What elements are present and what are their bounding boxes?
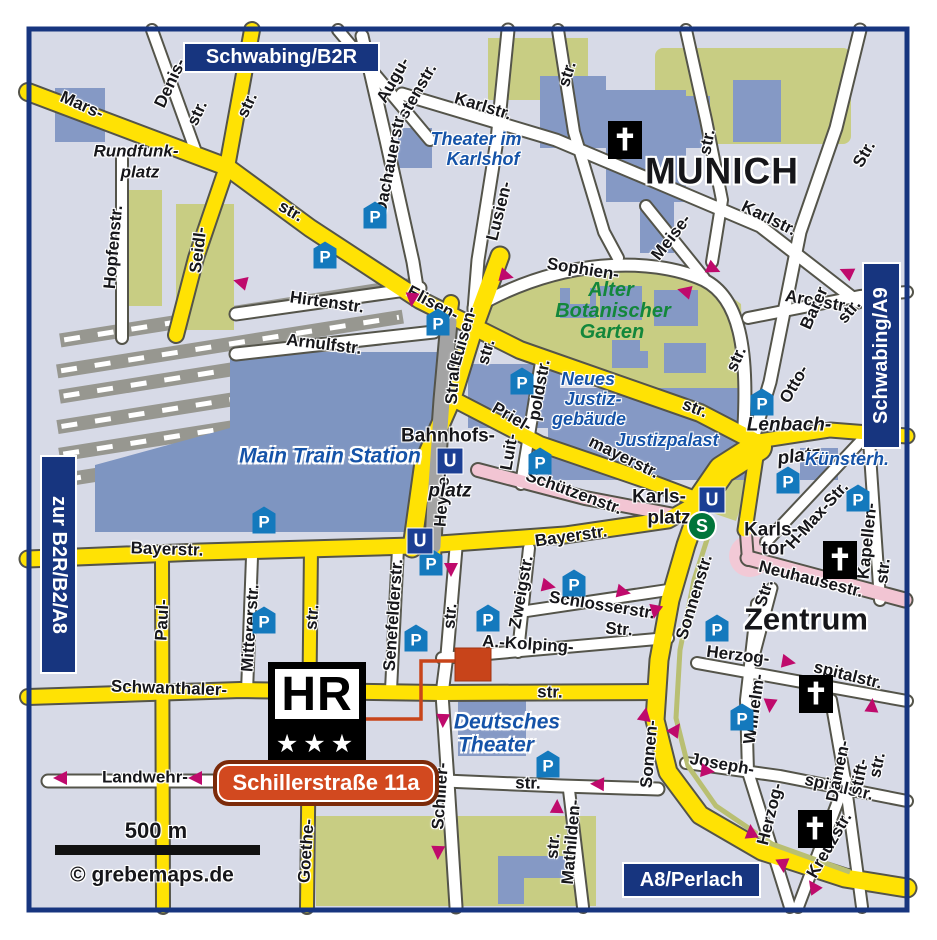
label-schwanthaler: Schwanthaler- [111, 677, 228, 698]
label-platz: platz [121, 164, 160, 181]
label-deutsches: Deutsches [454, 712, 560, 733]
label-alter: Alter [588, 280, 634, 300]
label-garten: Garten [580, 322, 644, 342]
oneway-arrow-icon [615, 583, 634, 602]
label-rundfunk: Rundfunk- [94, 143, 179, 160]
label-bayerstr: Bayerstr. [130, 539, 203, 559]
oneway-arrow-icon [761, 697, 778, 714]
ubahn-station-icon: U [437, 448, 464, 475]
oneway-arrow-icon [646, 603, 665, 622]
label-neues: Neues [561, 370, 615, 388]
oneway-arrow-icon [540, 577, 559, 596]
label-lenbach: Lenbach- [747, 416, 831, 435]
label-paul: Paul- [152, 599, 171, 641]
label-karls: Karls- [632, 488, 686, 507]
route-label-zur-b2r-b2-a8: zur B2R/B2/A8 [40, 455, 77, 674]
label-str: str. [543, 833, 562, 860]
label-str: str. [302, 604, 321, 631]
label-justizpalast: Justizpalast [615, 431, 718, 449]
oneway-arrow-icon [636, 705, 655, 724]
oneway-arrow-icon [187, 770, 203, 786]
label-tor: tor [761, 540, 786, 559]
label-künsterh: Künsterh. [805, 450, 889, 468]
label-theater-im: Theater im [430, 130, 521, 148]
label-botanischer: Botanischer [555, 301, 671, 321]
label-grebemaps-de: © grebemaps.de [70, 865, 234, 886]
label-500-m: 500 m [125, 820, 187, 842]
munich-city-map: Mars-str.str.Denis-str.Seidl-Hopfenstr.S… [0, 0, 937, 940]
route-label-schwabing-a9: Schwabing/A9 [862, 262, 901, 449]
route-label-a8-perlach: A8/Perlach [622, 862, 761, 898]
label-platz: platz [647, 509, 690, 528]
label-karls: Karls- [744, 521, 798, 540]
oneway-arrow-icon [863, 696, 880, 713]
church-icon: ✝ [608, 121, 642, 159]
label-str: str. [440, 603, 459, 630]
route-label-schwabing-b2r: Schwabing/B2R [183, 42, 380, 73]
label-justiz: Justiz- [564, 390, 621, 408]
label-gebäude: gebäude [552, 410, 626, 428]
label-str: str. [537, 683, 563, 700]
ubahn-station-icon: U [407, 528, 434, 555]
label-main-train-station: Main Train Station [239, 446, 421, 467]
oneway-arrow-icon [435, 713, 452, 730]
label-theater: Theater [458, 735, 534, 756]
scale-bar [55, 845, 260, 855]
label-munich: MUNICH [645, 153, 799, 190]
oneway-arrow-icon [589, 776, 606, 793]
church-icon: ✝ [823, 541, 857, 579]
oneway-arrow-icon [443, 562, 459, 578]
label-str: Str. [605, 620, 634, 639]
hotel-building [455, 648, 491, 681]
hotel-address-badge: Schillerstraße 11a [213, 760, 439, 806]
oneway-arrow-icon [742, 822, 759, 839]
oneway-arrow-icon [430, 845, 447, 862]
label-landwehr: Landwehr- [102, 769, 188, 786]
hotel-logo-initials: HR [268, 662, 366, 726]
oneway-arrow-icon [780, 653, 799, 672]
hotel-star-rating: ★★★ [268, 726, 366, 762]
label-bahnhofs: Bahnhofs- [401, 427, 495, 446]
label-platz: platz [428, 482, 471, 501]
hotel-logo: HR ★★★ [268, 662, 366, 762]
sbahn-station-icon: S [687, 511, 717, 541]
oneway-arrow-icon [699, 762, 717, 780]
label-karlshof: Karlshof [446, 150, 519, 168]
oneway-arrow-icon [549, 798, 566, 815]
label-zentrum: Zentrum [744, 604, 868, 635]
church-icon: ✝ [799, 675, 833, 713]
ubahn-station-icon: U [699, 487, 726, 514]
church-icon: ✝ [798, 810, 832, 848]
oneway-arrow-icon [403, 291, 420, 308]
label-str: str. [873, 557, 893, 584]
oneway-arrow-icon [774, 857, 791, 874]
label-goethe: Goethe- [295, 818, 316, 883]
oneway-arrow-icon [52, 770, 68, 786]
